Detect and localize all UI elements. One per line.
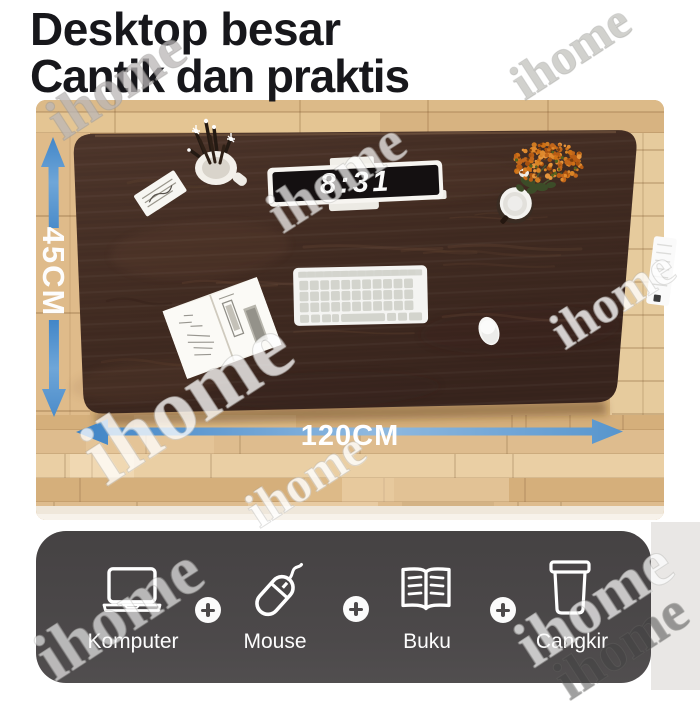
svg-text:45CM: 45CM xyxy=(36,227,71,318)
svg-text:120CM: 120CM xyxy=(301,420,400,452)
svg-text:8:31: 8:31 xyxy=(319,165,392,200)
